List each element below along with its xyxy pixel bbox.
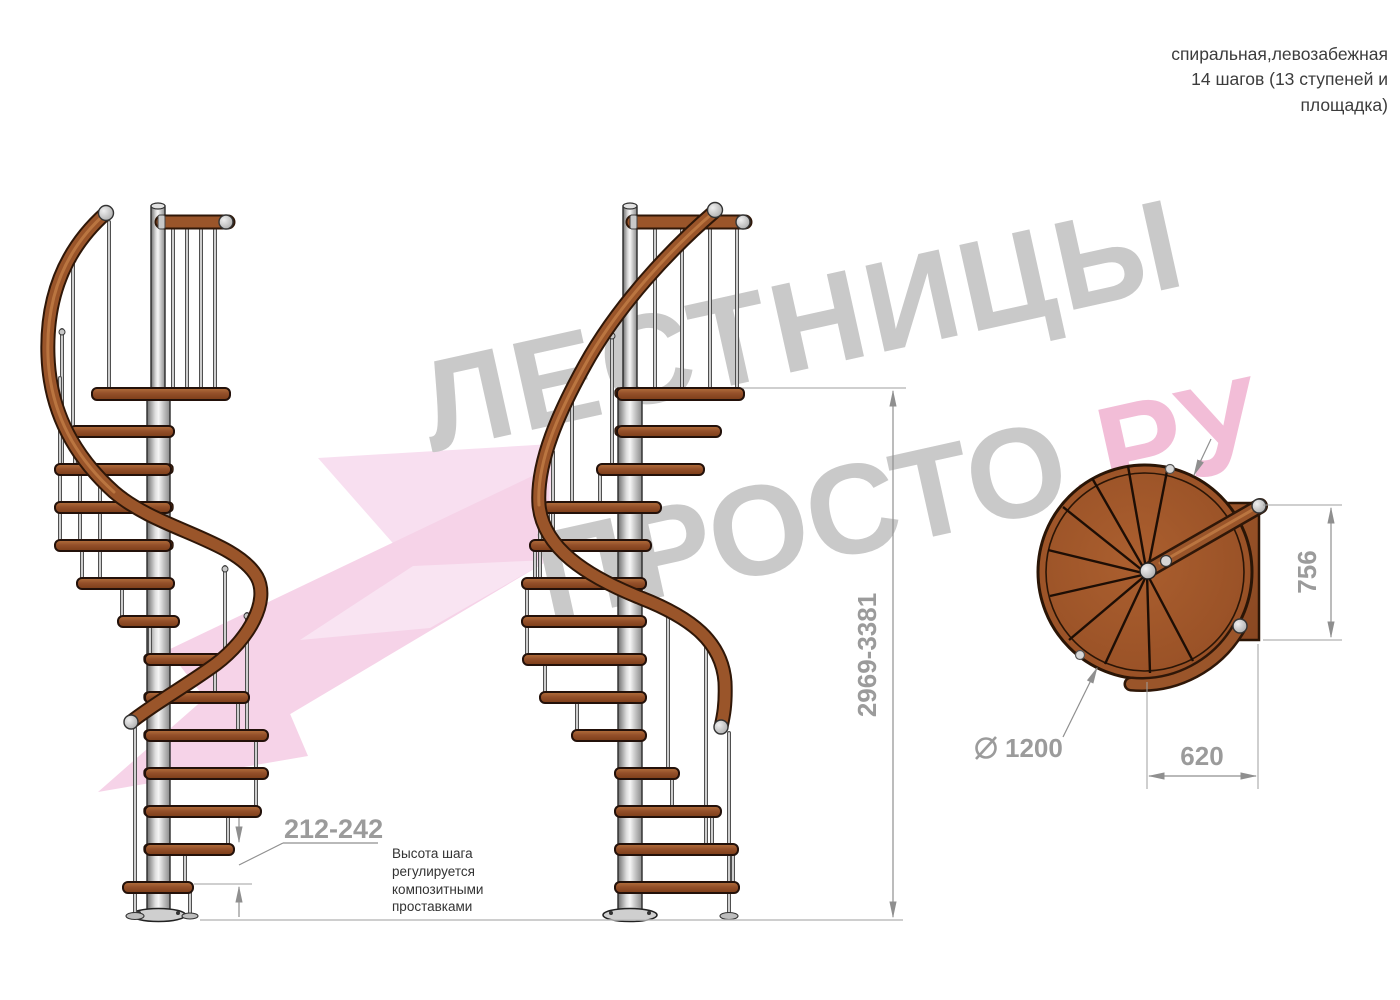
drawing-canvas: ЛЕСТНИЦЫ ПРОСТО.РУ [0,0,1400,1000]
configuration-note: спиральная,левозабежная 14 шагов (13 сту… [1171,42,1388,118]
plan-width-label: 620 [1180,741,1223,771]
configuration-note-line: площадка) [1171,93,1388,118]
step-height-label: 212-242 [284,814,383,844]
landing-handrail [158,215,233,229]
center-pole-hub [1140,563,1156,579]
diameter-icon [976,737,996,759]
dimension-step-height: 212-242 [194,814,383,917]
step-height-note-line: Высота шага [392,845,483,863]
plan-depth-label: 756 [1292,550,1322,593]
step-height-note-line: проставками [392,898,483,916]
configuration-note-line: 14 шагов (13 ступеней и [1171,67,1388,92]
configuration-note-line: спиральная,левозабежная [1171,42,1388,67]
step-height-note: Высота шага регулируется композитными пр… [392,845,483,916]
dimension-plan-depth: 756 [1263,505,1342,640]
step-height-note-line: композитными [392,881,483,899]
total-height-label: 2969-3381 [852,593,882,717]
side-view-left-staircase [48,203,268,922]
plan-diameter-label: 1200 [1005,733,1063,763]
step-height-note-line: регулируется [392,863,483,881]
